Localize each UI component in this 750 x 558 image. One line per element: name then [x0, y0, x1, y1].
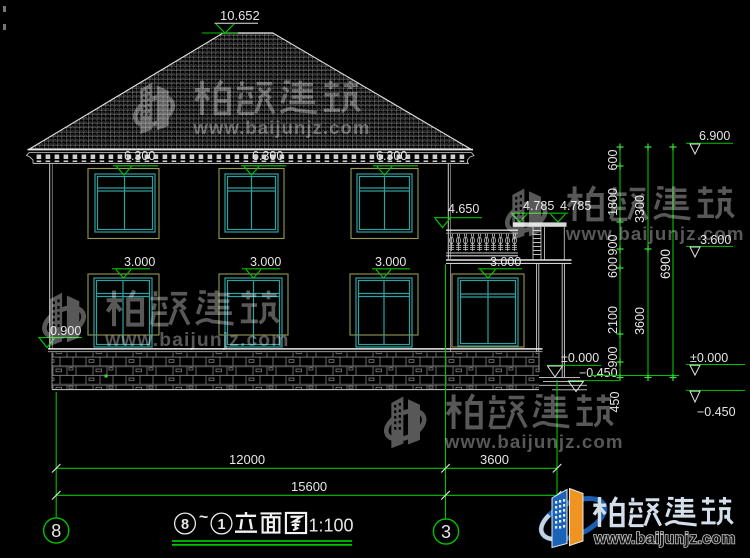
svg-text:3: 3: [441, 522, 451, 542]
svg-text:600: 600: [606, 150, 620, 171]
svg-text:4.650: 4.650: [448, 202, 479, 216]
svg-text:1: 1: [217, 517, 225, 533]
svg-text:6900: 6900: [658, 249, 673, 279]
svg-text:8: 8: [51, 521, 61, 541]
svg-text:3600: 3600: [480, 452, 509, 467]
svg-text:3.000: 3.000: [490, 255, 521, 269]
svg-text:10.652: 10.652: [220, 8, 260, 23]
svg-text:15600: 15600: [291, 479, 327, 494]
svg-text:±0.000: ±0.000: [561, 351, 599, 365]
svg-text:−0.450: −0.450: [697, 405, 736, 419]
svg-text:900: 900: [606, 347, 620, 368]
svg-text:8: 8: [181, 517, 189, 533]
svg-text:6.900: 6.900: [699, 129, 730, 143]
svg-text:6.300: 6.300: [376, 149, 407, 163]
svg-text:www.baijunjz.com: www.baijunjz.com: [593, 531, 736, 548]
svg-text:3.000: 3.000: [124, 255, 155, 269]
svg-text:3.000: 3.000: [250, 255, 281, 269]
svg-text:3.000: 3.000: [375, 255, 406, 269]
svg-text:3600: 3600: [633, 307, 647, 335]
svg-text:1:100: 1:100: [308, 516, 353, 536]
svg-text:~: ~: [199, 509, 208, 526]
svg-text:600: 600: [606, 257, 620, 278]
svg-text:6.300: 6.300: [252, 149, 283, 163]
svg-text:2100: 2100: [606, 306, 620, 334]
svg-text:12000: 12000: [229, 452, 265, 467]
svg-text:6.300: 6.300: [124, 149, 155, 163]
svg-text:±0.000: ±0.000: [690, 351, 728, 365]
